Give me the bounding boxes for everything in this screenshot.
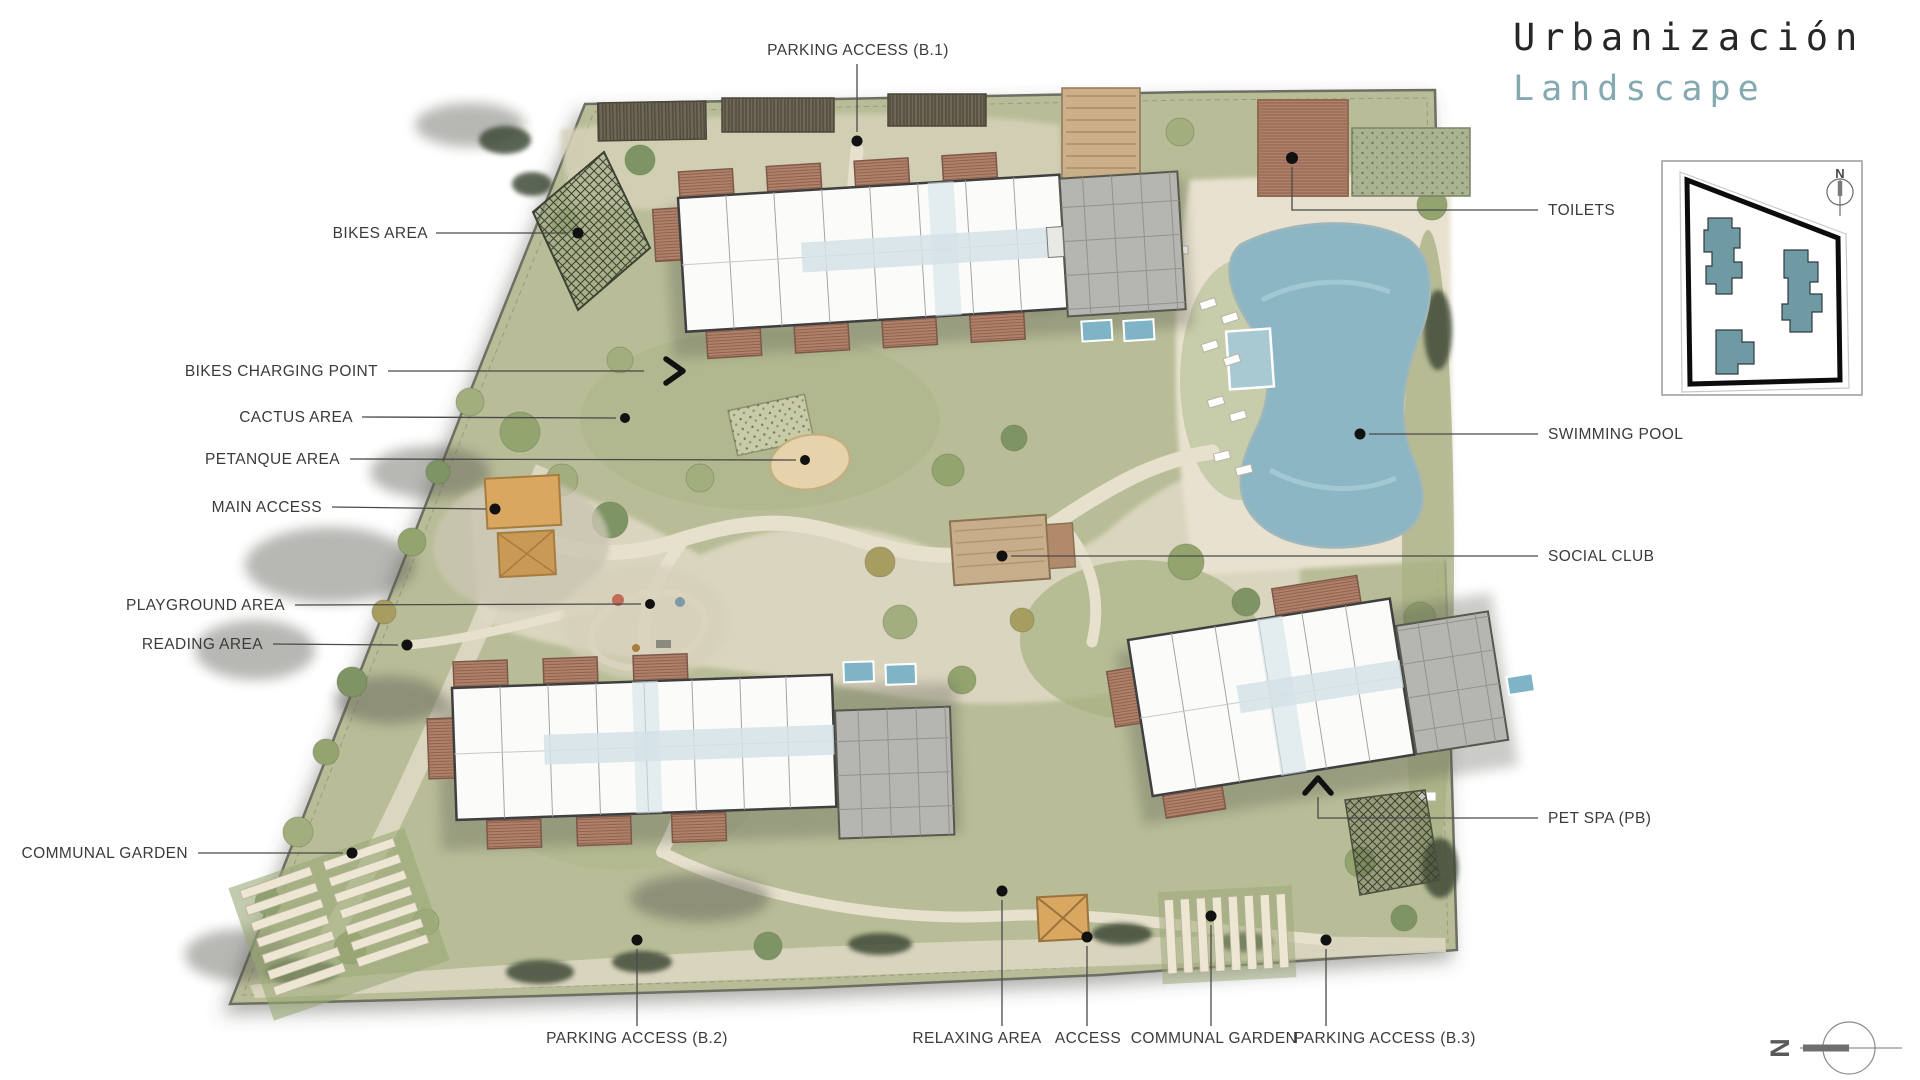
- keyplan: N: [1662, 161, 1862, 395]
- communal-garden-bottom: [1158, 885, 1297, 984]
- label-main-access: MAIN ACCESS: [212, 499, 322, 516]
- label-reading-area: READING AREA: [142, 636, 263, 653]
- label-access: ACCESS: [1055, 1030, 1121, 1047]
- label-parking-access-b1: PARKING ACCESS (B.1): [767, 42, 949, 59]
- label-social-club: SOCIAL CLUB: [1548, 548, 1654, 565]
- title-line2: Landscape: [1513, 69, 1766, 109]
- label-playground-area: PLAYGROUND AREA: [126, 597, 285, 614]
- relaxing-pergola: [1037, 895, 1089, 942]
- label-parking-access-b3: PARKING ACCESS (B.3): [1294, 1030, 1476, 1047]
- site-plan: PARKING ACCESS (B.1) BIKES AREA BIKES CH…: [0, 0, 1920, 1080]
- swimming-pool: [1226, 223, 1430, 547]
- landscape-masterplan-sheet: PARKING ACCESS (B.1) BIKES AREA BIKES CH…: [0, 0, 1920, 1080]
- plan-north-arrow-icon: N: [1765, 1022, 1902, 1074]
- boardwalk: [1062, 88, 1140, 188]
- label-communal-garden-bottom: COMMUNAL GARDEN: [1131, 1030, 1297, 1047]
- keyplan-north-label: N: [1835, 166, 1844, 181]
- label-swimming-pool: SWIMMING POOL: [1548, 426, 1683, 443]
- label-communal-garden-left: COMMUNAL GARDEN: [22, 845, 188, 862]
- plan-north-label: N: [1765, 1038, 1795, 1058]
- label-parking-access-b2: PARKING ACCESS (B.2): [546, 1030, 728, 1047]
- label-relaxing-area: RELAXING AREA: [912, 1030, 1042, 1047]
- sheet-title: Urbanización Landscape: [1513, 16, 1864, 109]
- label-bikes-charging-point: BIKES CHARGING POINT: [185, 363, 378, 380]
- title-line1: Urbanización: [1513, 16, 1864, 59]
- label-petanque-area: PETANQUE AREA: [205, 451, 340, 468]
- label-pet-spa: PET SPA (PB): [1548, 810, 1651, 827]
- label-toilets: TOILETS: [1548, 202, 1615, 219]
- pet-spa-area: [1345, 790, 1440, 895]
- label-bikes-area: BIKES AREA: [333, 225, 429, 242]
- label-cactus-area: CACTUS AREA: [239, 409, 353, 426]
